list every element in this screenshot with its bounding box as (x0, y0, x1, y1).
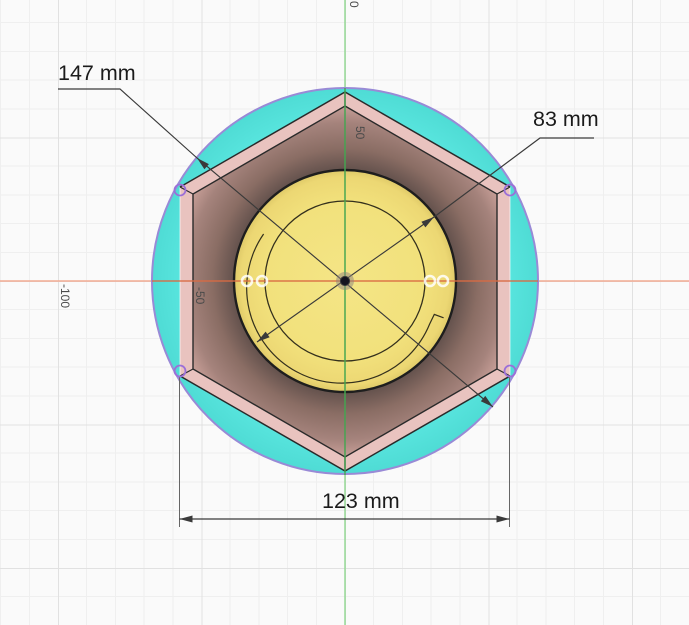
dimension-83-text[interactable]: 83 mm (533, 107, 599, 131)
axis-label-minus-100: -100 (58, 284, 72, 308)
axis-label-50: 50 (353, 126, 367, 140)
sketch-canvas: 147 mm 83 mm 123 mm 0 50 -50 -100 (0, 0, 689, 625)
dimension-147-text[interactable]: 147 mm (58, 61, 136, 85)
origin-point[interactable] (340, 276, 349, 285)
origin-marker[interactable] (336, 272, 354, 290)
axis-label-zero: 0 (347, 1, 361, 8)
cad-viewport: 147 mm 83 mm 123 mm 0 50 -50 -100 (0, 0, 689, 625)
dimension-123-text[interactable]: 123 mm (322, 489, 400, 513)
axis-label-minus-50: -50 (193, 287, 207, 305)
